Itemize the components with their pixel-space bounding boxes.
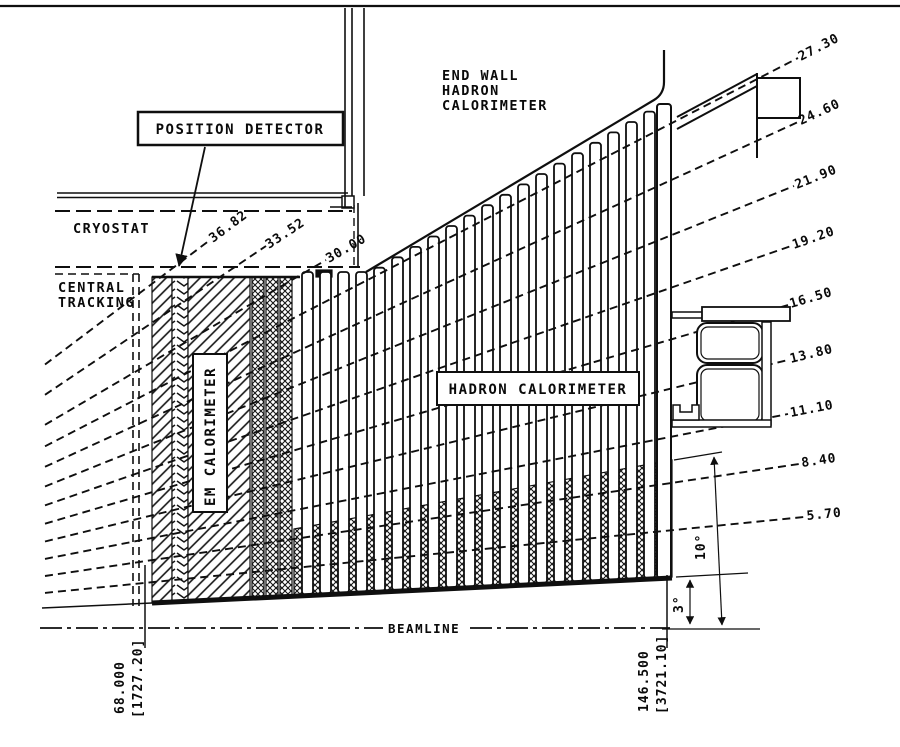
tower-angle-label: 5.70 (806, 506, 843, 524)
tower-angle-label: 30.00 (324, 231, 370, 266)
position-detector-label: POSITION DETECTOR (156, 122, 325, 138)
end-wall-label-line3: CALORIMETER (442, 98, 548, 114)
hadron-plate (374, 268, 385, 591)
right-dimension-mm: [3721.10] (655, 635, 670, 714)
diagram-canvas: 36.8233.5230.0027.3024.6021.9019.2016.50… (0, 0, 900, 747)
left-dimension-inches: 68.000 (113, 661, 128, 714)
hadron-plate (428, 237, 439, 589)
tower-angle-label: 27.30 (796, 31, 842, 65)
support-structure (672, 307, 790, 427)
central-tracking-label-line2: TRACKING (58, 295, 135, 311)
position-detector-strip (172, 277, 188, 601)
tower-angle-label: 13.80 (788, 342, 834, 367)
hadron-plate (302, 272, 313, 595)
end-wall-label-line2: HADRON (442, 83, 500, 99)
position-detector-leader (179, 147, 205, 266)
tower-angle-label: 8.40 (800, 451, 837, 471)
tower-angle-label: 24.60 (796, 97, 842, 129)
ten-degree-label: 10° (694, 534, 709, 560)
three-degree-extension-line (676, 573, 748, 577)
hadron-calorimeter-label: HADRON CALORIMETER (449, 382, 628, 398)
detector-cross-section-figure: 36.8233.5230.0027.3024.6021.9019.2016.50… (0, 0, 900, 747)
beamline: BEAMLINE (40, 621, 670, 636)
tower-angle-label: 21.90 (793, 162, 840, 192)
central-tracking-label-line1: CENTRAL (58, 280, 125, 296)
tower-angle-label: 11.10 (789, 398, 835, 421)
ten-degree-dimension-line (714, 457, 722, 625)
left-dimension-mm: [1727.20] (131, 639, 146, 718)
hadron-plates (302, 104, 671, 595)
hadron-plate (338, 272, 349, 593)
hadron-plate (320, 272, 331, 594)
tower-angle-label: 19.20 (790, 224, 837, 253)
tower-angle-label: 36.82 (206, 208, 250, 246)
three-degree-line-left (42, 603, 152, 608)
outer-support-flange (677, 73, 800, 158)
end-wall-label-line1: END WALL (442, 68, 519, 84)
cryostat-label: CRYOSTAT (73, 221, 150, 237)
beamline-label: BEAMLINE (388, 621, 460, 636)
three-degree-label: 3° (672, 595, 687, 613)
tower-angle-label: 16.50 (788, 285, 835, 312)
tower-angle-label: 33.52 (263, 215, 308, 252)
right-dimension-inches: 146.500 (637, 650, 652, 712)
ten-degree-extension-line (674, 452, 722, 460)
em-calorimeter-label: EM CALORIMETER (203, 367, 219, 506)
central-tracking-boundary (55, 274, 139, 606)
